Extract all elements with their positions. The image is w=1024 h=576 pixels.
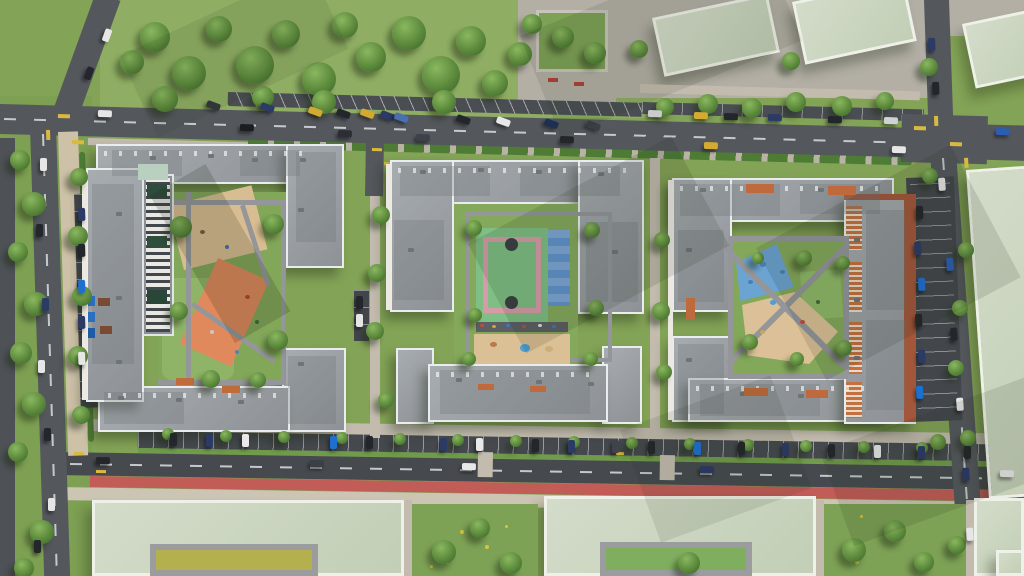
tree [462, 352, 476, 366]
car [240, 124, 254, 131]
tree [140, 22, 170, 52]
car [366, 436, 373, 449]
roof-vent [700, 188, 706, 192]
tree [920, 58, 938, 76]
tree [914, 552, 934, 572]
yellow-mark [372, 148, 382, 151]
kiosk [100, 326, 112, 334]
tree [510, 435, 522, 447]
roof-vent [252, 158, 258, 162]
fitness-item [492, 325, 496, 328]
tree [332, 12, 358, 38]
roof-vent [116, 212, 122, 216]
tree [584, 42, 606, 64]
entrance-canopy [176, 378, 194, 385]
car [962, 468, 970, 481]
car [476, 438, 483, 451]
tree [922, 168, 938, 184]
crosswalk-2 [660, 455, 675, 480]
play-equipment [780, 270, 785, 274]
tree [654, 232, 670, 248]
sport-court-blue [548, 230, 570, 306]
car [738, 442, 745, 455]
roof-pergola [746, 184, 774, 193]
tree [482, 70, 508, 96]
roof-pergola [806, 390, 828, 398]
car [242, 434, 249, 447]
tree [626, 437, 638, 449]
car [828, 444, 835, 457]
tree [584, 352, 598, 366]
tree [170, 302, 188, 320]
roof-vent [798, 394, 804, 398]
play-equipment [760, 330, 765, 334]
car [950, 328, 958, 341]
roof-vent [854, 356, 860, 360]
yellow-mark [934, 116, 938, 126]
tree [236, 46, 274, 84]
roof-vent [686, 358, 692, 362]
car [38, 360, 45, 373]
roof-vent [298, 208, 304, 212]
car [914, 242, 921, 255]
court-circle [505, 238, 518, 251]
roof-vent [150, 156, 156, 160]
tree [842, 538, 866, 562]
tree [588, 300, 604, 316]
car [612, 440, 619, 453]
tree [742, 98, 762, 118]
fitness-item [522, 325, 526, 328]
roof-patch [866, 320, 906, 410]
tree [470, 518, 490, 538]
car [330, 436, 337, 449]
tree [796, 250, 812, 266]
tree [356, 42, 386, 72]
play-equipment [225, 245, 229, 249]
car [700, 466, 714, 473]
play-equipment [800, 320, 805, 324]
tree [930, 434, 946, 450]
tree [8, 442, 28, 462]
tree [268, 330, 288, 350]
car [310, 460, 324, 467]
roof-vent [818, 188, 824, 192]
flower [505, 525, 508, 528]
car [768, 114, 782, 121]
tree [630, 40, 648, 58]
roof-patch [678, 230, 724, 302]
car [206, 434, 213, 447]
tree [858, 441, 870, 453]
car [48, 498, 55, 511]
tree [466, 220, 482, 236]
car [964, 446, 971, 459]
play-equipment [520, 344, 530, 352]
tree [366, 322, 384, 340]
play-equipment [210, 330, 214, 334]
tree [884, 520, 906, 542]
tree [432, 90, 456, 114]
car [884, 117, 898, 124]
tower-green-roof [147, 236, 167, 248]
roof-vent [478, 168, 484, 172]
yellow-mark [74, 452, 84, 455]
tree [22, 392, 46, 416]
roof-vent [116, 360, 122, 364]
tree [456, 26, 486, 56]
roof-vent [536, 170, 542, 174]
tree [8, 242, 28, 262]
car [918, 278, 925, 291]
roof-vent [300, 158, 306, 162]
tree [172, 56, 206, 90]
inner-court-olive [150, 544, 318, 576]
tree [170, 216, 192, 238]
car [916, 206, 923, 219]
entrance-canopy [222, 386, 240, 393]
recycle-bin [88, 328, 95, 338]
roof-vent [612, 250, 618, 254]
lane-east [650, 158, 660, 434]
roof-vent [420, 170, 426, 174]
tree [394, 433, 406, 445]
tree [14, 558, 34, 576]
tree [22, 192, 46, 216]
car [938, 178, 946, 191]
tree [206, 16, 232, 42]
car [98, 110, 112, 117]
yellow-mark [46, 130, 50, 140]
play-equipment [255, 320, 259, 324]
tree [948, 536, 966, 554]
tower-facade [146, 178, 170, 332]
car [892, 146, 906, 153]
car [78, 316, 85, 329]
tree [468, 308, 482, 322]
car [78, 280, 85, 293]
roof-vent [456, 378, 462, 382]
tree [72, 406, 90, 424]
tree [678, 552, 700, 574]
car [932, 82, 939, 95]
yellow-mark [950, 142, 962, 146]
tree [392, 16, 426, 50]
play-equipment [545, 346, 553, 352]
fitness-item [506, 324, 510, 327]
tree [876, 92, 894, 110]
tree [378, 392, 394, 408]
car [170, 433, 177, 446]
tree [698, 94, 718, 114]
roof-vent [598, 172, 604, 176]
yellow-mark [914, 126, 926, 130]
tree [250, 372, 266, 388]
tower-green-roof [147, 290, 167, 304]
flower [485, 545, 489, 549]
inner-court-green [600, 542, 752, 576]
roof-vent [176, 398, 182, 402]
play-equipment [490, 342, 497, 347]
tree [68, 226, 88, 246]
tree [948, 360, 964, 376]
tree [452, 434, 464, 446]
roof-vent [238, 400, 244, 404]
roof-vent [116, 296, 122, 300]
car [694, 442, 701, 455]
tree [508, 42, 532, 66]
car [918, 350, 925, 363]
car [36, 224, 43, 237]
car [34, 540, 41, 553]
tree [958, 242, 974, 258]
roof-patch [288, 356, 336, 424]
tree [952, 300, 968, 316]
crosswalk-1 [478, 452, 493, 477]
roof-vent [854, 238, 860, 242]
roof-vent [536, 380, 542, 384]
bench [548, 78, 558, 82]
yellow-mark [964, 158, 969, 168]
roof-vent-row [696, 386, 876, 391]
car [96, 457, 110, 464]
car [338, 130, 352, 137]
entrance-canopy [478, 384, 494, 390]
yellow-mark [58, 114, 70, 118]
roof-pergola [686, 298, 695, 320]
car [78, 352, 85, 365]
tree [272, 20, 300, 48]
tree [960, 430, 976, 446]
roof-vent-row [398, 168, 628, 173]
tree [522, 14, 542, 34]
bench [574, 82, 584, 86]
car [874, 445, 881, 458]
lane-west-junction [365, 138, 384, 196]
tree [790, 352, 804, 366]
play-equipment [816, 300, 820, 304]
roof-pergola [744, 388, 768, 396]
tree [832, 96, 852, 116]
tree [278, 431, 290, 443]
tree [584, 222, 600, 238]
fitness-item [538, 324, 542, 327]
car [532, 439, 539, 452]
tree [652, 302, 670, 320]
tree [656, 364, 672, 380]
car [568, 440, 575, 453]
tree [264, 214, 284, 234]
garden-walk [404, 500, 412, 576]
roof-patch [92, 184, 134, 364]
tree [70, 168, 88, 186]
car [42, 298, 49, 311]
facade-mid-west [386, 164, 391, 310]
roof-vent-row [436, 372, 596, 377]
car [966, 528, 974, 541]
car [648, 441, 655, 454]
tree [752, 252, 764, 264]
tree [786, 92, 806, 112]
car [356, 296, 363, 309]
roof-vent [686, 248, 692, 252]
kiosk [98, 298, 110, 306]
court-circle [505, 296, 518, 309]
car [928, 38, 935, 51]
car [918, 446, 925, 459]
yellow-mark [72, 140, 84, 144]
spur-road [965, 124, 1024, 152]
car [44, 428, 51, 441]
roof-pergola [828, 186, 856, 195]
fitness-item [480, 324, 484, 327]
roof-vent [854, 298, 860, 302]
tower-green-roof [147, 184, 167, 198]
tree [782, 52, 800, 70]
yellow-mark [96, 470, 106, 473]
car [946, 258, 954, 271]
tree [10, 342, 32, 364]
play-equipment [235, 350, 239, 354]
tree [836, 340, 852, 356]
car [440, 438, 447, 451]
tree [220, 430, 232, 442]
roof-patch [296, 152, 336, 242]
courtyard-path [158, 200, 286, 205]
roof-vent-row [108, 393, 276, 398]
tree [552, 26, 574, 48]
car [78, 208, 85, 221]
tree [836, 256, 850, 270]
flower [430, 565, 433, 568]
roof-vent [298, 362, 304, 366]
tree [500, 552, 522, 574]
tree [432, 540, 456, 564]
car [956, 398, 964, 411]
car [694, 112, 708, 119]
car [782, 443, 789, 456]
courtyard-path [466, 212, 612, 216]
roof-vent [408, 248, 414, 252]
courtyard-path [728, 236, 733, 378]
roof-vent-row [104, 151, 308, 156]
play-equipment [748, 280, 753, 284]
tree [372, 206, 390, 224]
glass-corner [138, 164, 168, 180]
flower [860, 515, 863, 518]
car [356, 314, 363, 327]
fitness-item [552, 325, 556, 328]
car [78, 244, 85, 257]
tree [202, 370, 220, 388]
car [462, 463, 476, 470]
roof-vent [208, 154, 214, 158]
tree [120, 50, 144, 74]
tree [742, 334, 758, 350]
tree [152, 86, 178, 112]
recycle-bin [88, 312, 95, 322]
tree [336, 432, 348, 444]
car [648, 110, 662, 117]
garden-walk [816, 500, 824, 576]
car [915, 314, 922, 327]
car [724, 113, 738, 120]
car [828, 116, 842, 123]
car [416, 134, 430, 141]
courtyard-path [608, 212, 612, 362]
entrance-canopy [530, 386, 546, 392]
car [996, 128, 1010, 135]
facade-right-west [668, 180, 673, 420]
tree [368, 264, 386, 282]
courtyard-path [728, 236, 848, 241]
play-equipment [770, 300, 776, 305]
building-pale-corner [996, 550, 1024, 576]
play-equipment [200, 230, 205, 234]
car [40, 158, 47, 171]
aerial-render-canvas [0, 0, 1024, 576]
roof-vent [588, 382, 594, 386]
play-equipment [245, 295, 250, 299]
car [560, 136, 574, 143]
car [916, 386, 923, 399]
car [704, 142, 718, 149]
courtyard-path [728, 374, 848, 379]
tree [800, 440, 812, 452]
roof-patch [394, 220, 444, 300]
flower [460, 530, 464, 534]
roof-patch [866, 210, 906, 310]
roof-vent [118, 396, 124, 400]
tree [10, 150, 30, 170]
car [1000, 470, 1014, 477]
tree [422, 56, 460, 94]
